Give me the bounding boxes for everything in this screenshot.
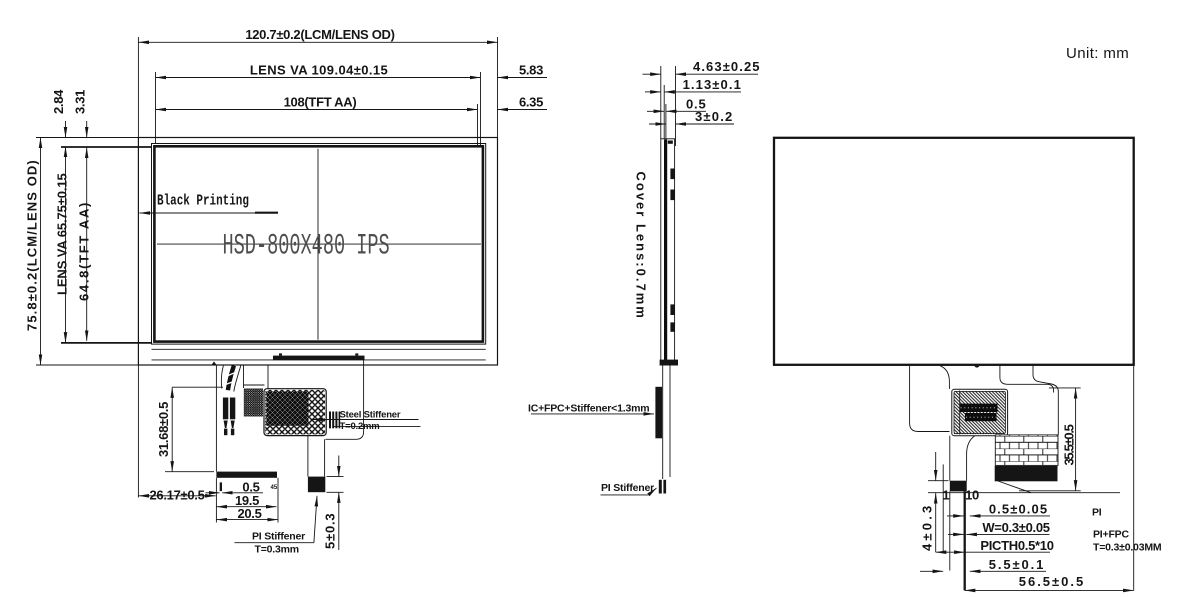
svg-text:HSD-800X480 IPS: HSD-800X480 IPS [223,230,390,264]
svg-text:75.8±0.2(LCM/LENS OD): 75.8±0.2(LCM/LENS OD) [25,159,40,331]
svg-text:PICTH0.5*10: PICTH0.5*10 [980,538,1053,553]
svg-text:T=0.3±0.03MM: T=0.3±0.03MM [1093,542,1162,554]
svg-text:T=0.3mm: T=0.3mm [255,544,299,556]
svg-text:5.5±0.1: 5.5±0.1 [989,557,1046,572]
svg-text:10: 10 [965,488,979,503]
svg-text:PI: PI [1092,507,1102,519]
svg-text:Cover Lens:0.7mm: Cover Lens:0.7mm [634,172,649,320]
svg-text:5.83: 5.83 [519,63,543,78]
svg-text:2.84: 2.84 [51,89,66,114]
svg-text:0.5: 0.5 [242,479,259,494]
svg-text:4.63±0.25: 4.63±0.25 [693,59,761,74]
svg-text:0.5±0.05: 0.5±0.05 [989,502,1048,517]
svg-text:5±0.3: 5±0.3 [323,513,338,549]
svg-text:64.8(TFT AA): 64.8(TFT AA) [77,201,92,301]
svg-text:31.68±0.5: 31.68±0.5 [156,402,171,457]
svg-text:1.13±0.1: 1.13±0.1 [683,77,742,92]
svg-text:20.5: 20.5 [237,506,261,521]
svg-text:35.5±0.5: 35.5±0.5 [1062,424,1077,465]
svg-text:Black Printing: Black Printing [157,192,249,209]
svg-text:Unit: mm: Unit: mm [1066,45,1129,62]
svg-text:W=0.3±0.05: W=0.3±0.05 [982,520,1049,535]
svg-text:3.31: 3.31 [73,90,88,114]
svg-text:PI+FPC: PI+FPC [1093,529,1129,541]
svg-text:108(TFT AA): 108(TFT AA) [284,95,357,110]
svg-text:120.7±0.2(LCM/LENS OD): 120.7±0.2(LCM/LENS OD) [245,27,394,42]
svg-text:LENS VA 109.04±0.15: LENS VA 109.04±0.15 [250,63,388,78]
svg-text:4±0.3: 4±0.3 [920,503,935,551]
svg-text:LENS VA 65.75±0.15: LENS VA 65.75±0.15 [55,173,70,295]
svg-text:1: 1 [942,488,949,503]
svg-text:6.35: 6.35 [519,95,543,110]
svg-text:PI Stiffener: PI Stiffener [252,531,305,543]
svg-text:26.17±0.5: 26.17±0.5 [149,488,204,503]
svg-text:3±0.2: 3±0.2 [695,109,733,124]
svg-text:IC+FPC+Stiffener<1.3mm: IC+FPC+Stiffener<1.3mm [528,403,649,415]
svg-text:56.5±0.5: 56.5±0.5 [1019,574,1086,589]
svg-text:PI Stiffener: PI Stiffener [601,482,654,494]
svg-text:Steel Stiffener: Steel Stiffener [340,410,401,421]
svg-text:45: 45 [271,485,278,491]
